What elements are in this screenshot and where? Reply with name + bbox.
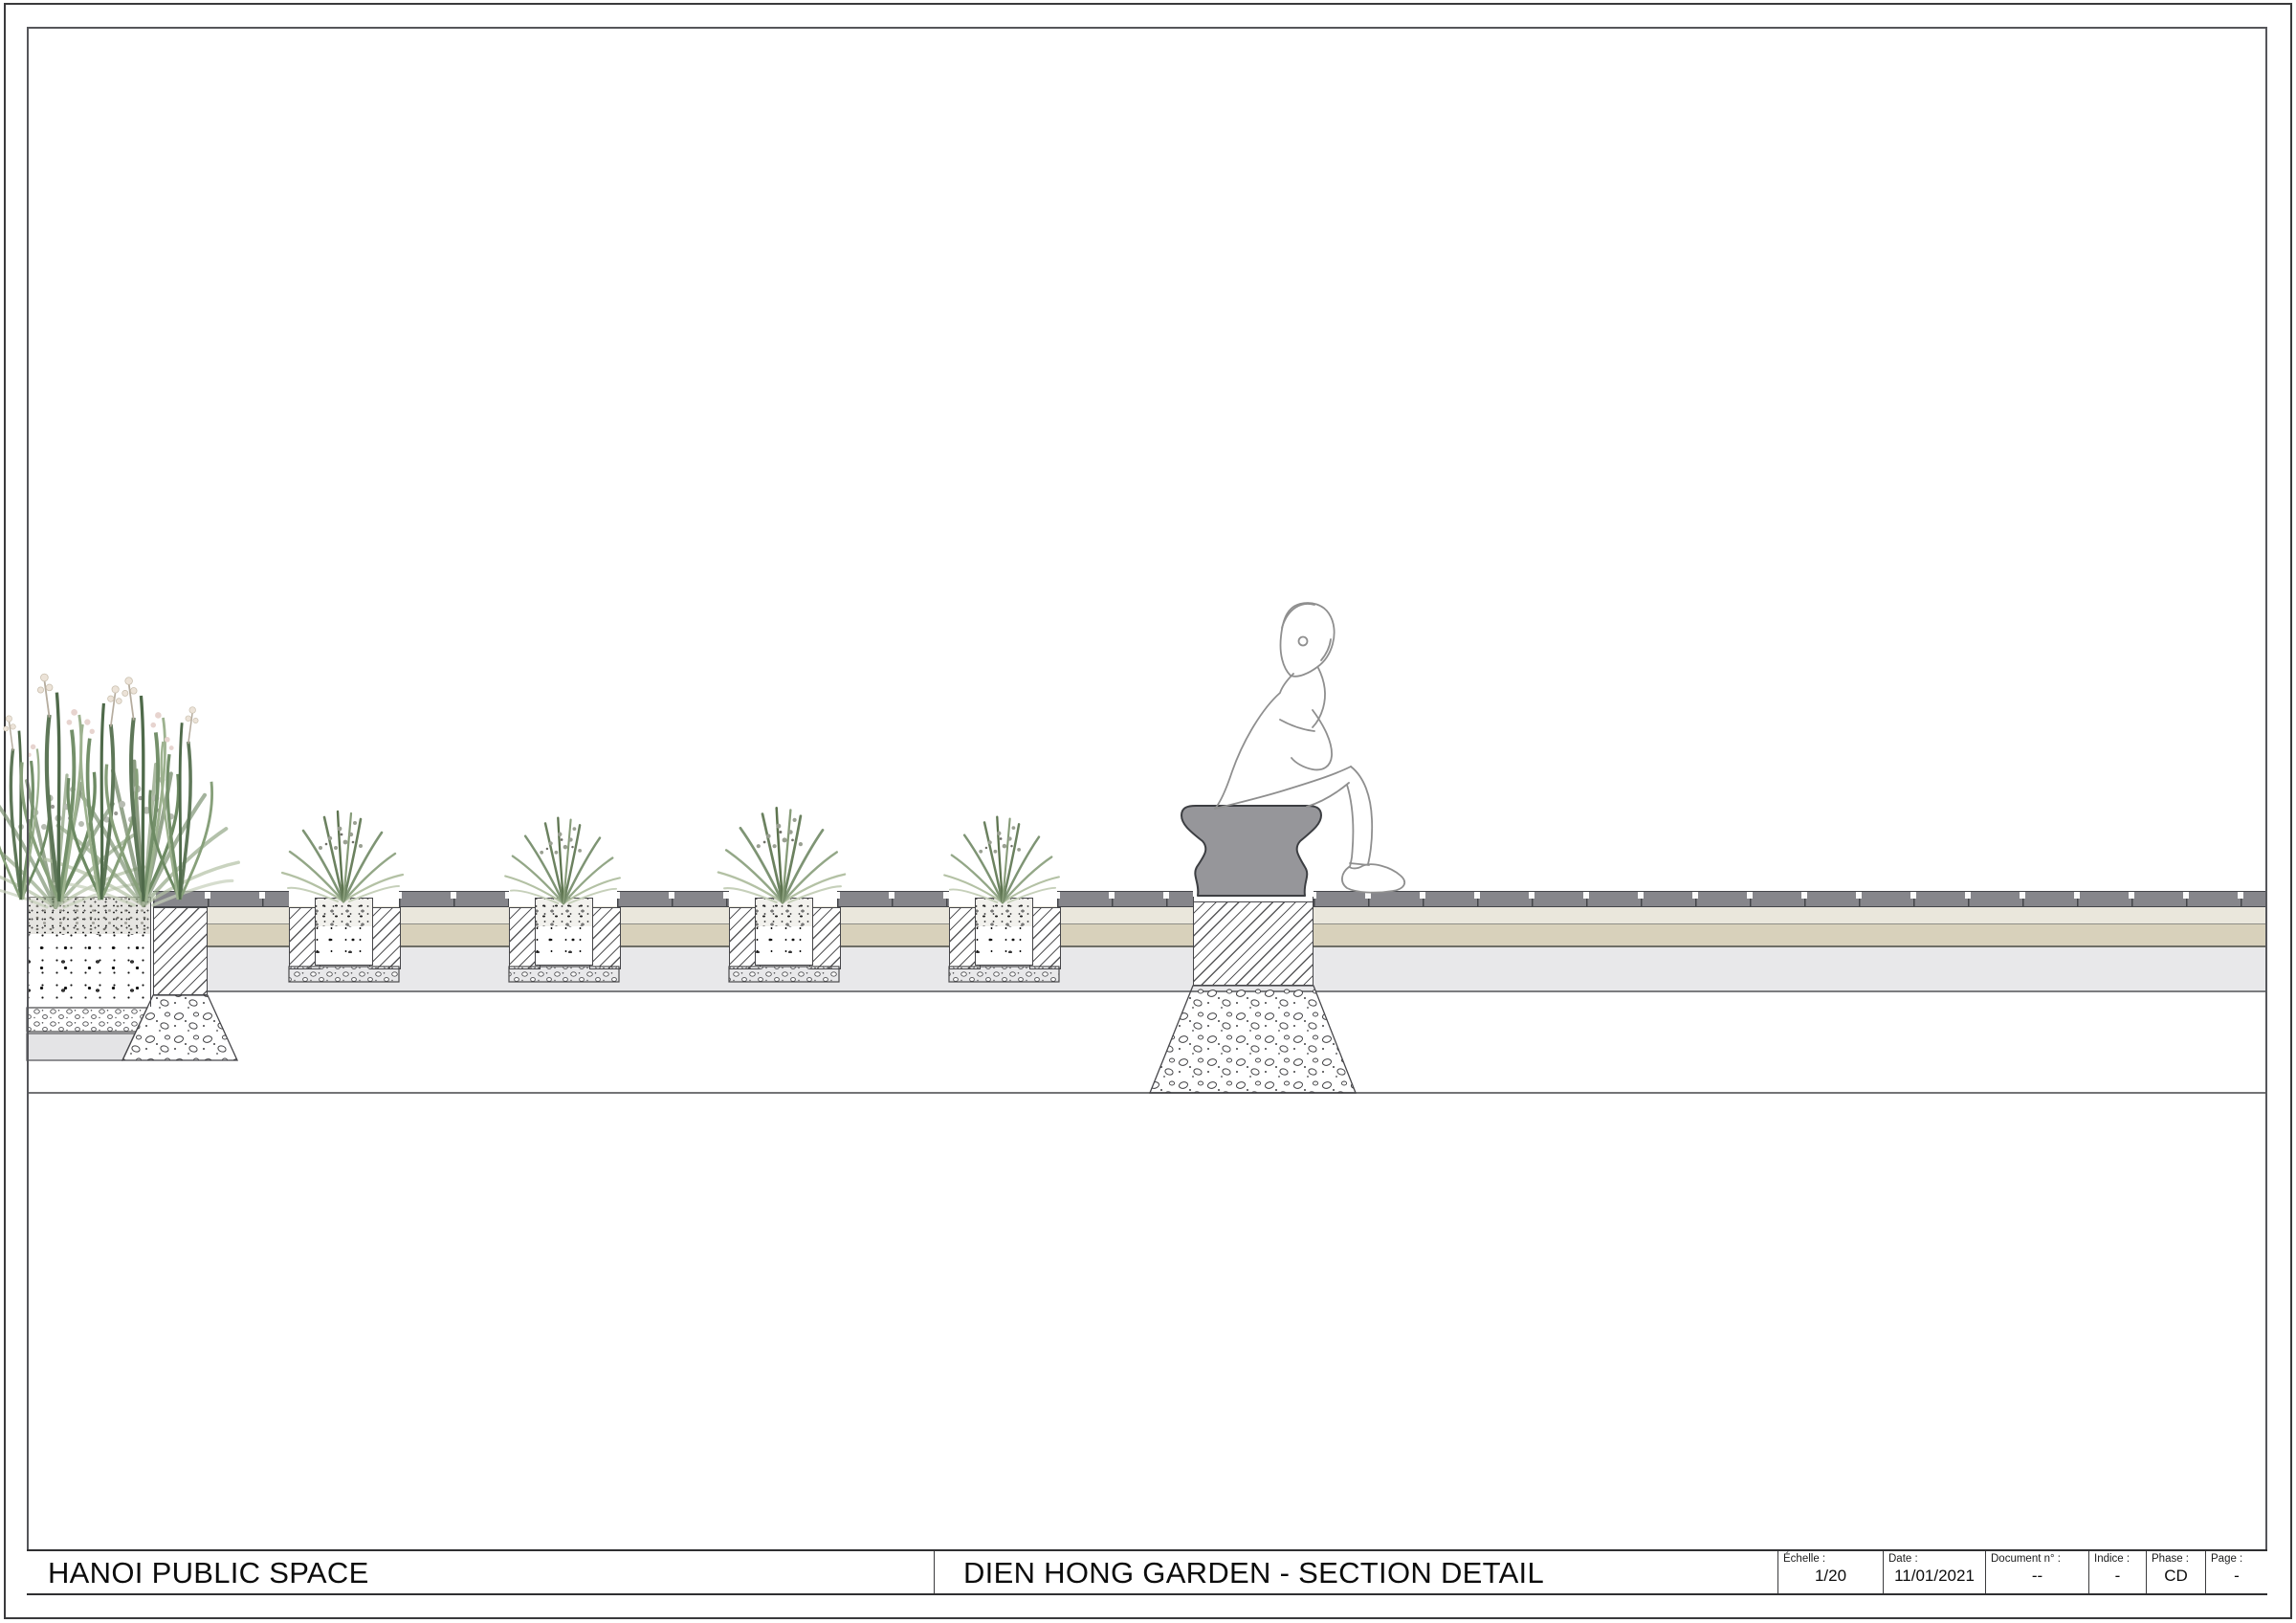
scale-value: 1/20 — [1778, 1567, 1883, 1586]
project-name: HANOI PUBLIC SPACE — [48, 1556, 369, 1590]
document-value: -- — [1986, 1567, 2088, 1586]
title-block: HANOI PUBLIC SPACE DIEN HONG GARDEN - SE… — [27, 1549, 2267, 1595]
page-value: - — [2206, 1567, 2267, 1586]
phase-value: CD — [2147, 1567, 2205, 1586]
titleblock-project-cell: HANOI PUBLIC SPACE — [27, 1551, 934, 1593]
drawing-sheet: HANOI PUBLIC SPACE DIEN HONG GARDEN - SE… — [0, 0, 2296, 1623]
titleblock-indice-cell: Indice : - — [2088, 1551, 2146, 1593]
indice-value: - — [2089, 1567, 2146, 1586]
scale-label: Échelle : — [1778, 1551, 1883, 1565]
page-label: Page : — [2206, 1551, 2267, 1565]
titleblock-scale-cell: Échelle : 1/20 — [1777, 1551, 1883, 1593]
indice-label: Indice : — [2089, 1551, 2146, 1565]
drawing-frame — [27, 27, 2267, 1595]
titleblock-phase-cell: Phase : CD — [2146, 1551, 2205, 1593]
titleblock-title-cell: DIEN HONG GARDEN - SECTION DETAIL — [934, 1551, 1777, 1593]
titleblock-page-cell: Page : - — [2205, 1551, 2267, 1593]
titleblock-document-cell: Document n° : -- — [1985, 1551, 2088, 1593]
titleblock-date-cell: Date : 11/01/2021 — [1883, 1551, 1985, 1593]
document-label: Document n° : — [1986, 1551, 2088, 1565]
date-value: 11/01/2021 — [1884, 1567, 1985, 1586]
phase-label: Phase : — [2147, 1551, 2205, 1565]
date-label: Date : — [1884, 1551, 1985, 1565]
drawing-title: DIEN HONG GARDEN - SECTION DETAIL — [963, 1556, 1544, 1590]
